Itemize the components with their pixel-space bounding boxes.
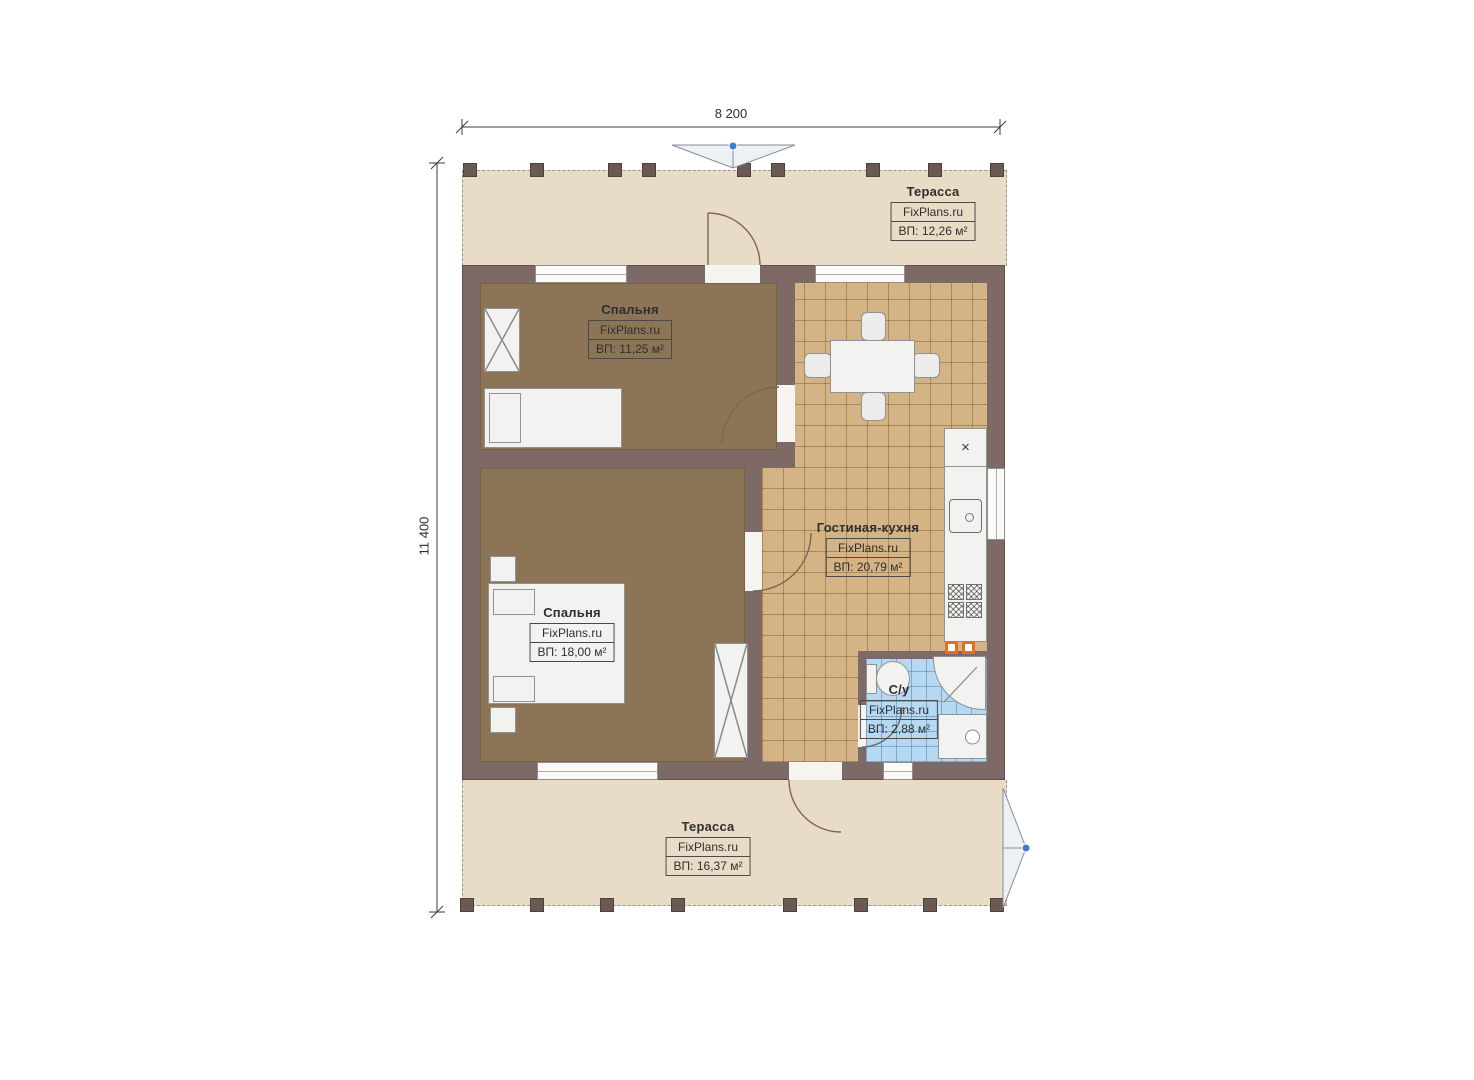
terrace-top-label: Терасса FixPlans.ru ВП: 12,26 м² [891, 184, 976, 241]
entry-door-opening [705, 265, 760, 283]
interior-wall [745, 450, 795, 468]
floor-plan-canvas: × [0, 0, 1474, 1080]
watermark: FixPlans.ru [892, 203, 975, 222]
bedroom-main-door-opening [745, 532, 762, 591]
back-door-opening [789, 762, 842, 780]
room-name: Гостиная-кухня [817, 520, 919, 535]
pillow-icon [493, 676, 535, 702]
chair-icon [912, 353, 940, 378]
terrace-post [866, 163, 880, 177]
terrace-post [608, 163, 622, 177]
terrace-post [923, 898, 937, 912]
terrace-bottom-label: Терасса FixPlans.ru ВП: 16,37 м² [666, 819, 751, 876]
stove-burner-icon [948, 584, 964, 600]
washing-machine-icon [938, 714, 987, 759]
watermark: FixPlans.ru [589, 321, 671, 340]
living-kitchen-label: Гостиная-кухня FixPlans.ru ВП: 20,79 м² [817, 520, 919, 577]
watermark: FixPlans.ru [667, 838, 750, 857]
room-area: ВП: 16,37 м² [667, 857, 750, 875]
chair-icon [861, 392, 886, 421]
terrace-post [460, 898, 474, 912]
window [537, 762, 658, 780]
terrace-post [463, 163, 477, 177]
room-area: ВП: 12,26 м² [892, 222, 975, 240]
stove-burner-icon [948, 602, 964, 618]
switch-box-icon [945, 641, 958, 654]
window [883, 762, 913, 780]
switch-box-icon [962, 641, 975, 654]
terrace-post [928, 163, 942, 177]
room-area: ВП: 18,00 м² [531, 643, 614, 661]
window [815, 265, 905, 283]
terrace-post [854, 898, 868, 912]
room-area: ВП: 2,88 м² [861, 720, 937, 738]
bedroom-main-label: Спальня FixPlans.ru ВП: 18,00 м² [530, 605, 615, 662]
terrace-post [642, 163, 656, 177]
chair-icon [861, 312, 886, 341]
terrace-post [530, 898, 544, 912]
window [987, 468, 1005, 540]
terrace-post [990, 163, 1004, 177]
dimension-height-label: 11 400 [417, 517, 432, 556]
stove-burner-icon [966, 602, 982, 618]
watermark: FixPlans.ru [861, 701, 937, 720]
bedroom-top-door-opening [777, 385, 795, 442]
terrace-post [530, 163, 544, 177]
chair-icon [804, 353, 832, 378]
kitchen-sink-icon [949, 499, 982, 533]
wardrobe-icon [484, 308, 520, 372]
washer-drum-icon [965, 729, 980, 744]
room-name: Терасса [666, 819, 751, 834]
fridge-icon: × [944, 428, 987, 467]
terrace-post [783, 898, 797, 912]
terrace-post [771, 163, 785, 177]
pillow-icon [489, 393, 521, 443]
dimension-width-label: 8 200 [715, 106, 748, 121]
room-name: С/у [860, 682, 938, 697]
terrace-post [671, 898, 685, 912]
room-name: Спальня [530, 605, 615, 620]
bedroom-top-label: Спальня FixPlans.ru ВП: 11,25 м² [588, 302, 672, 359]
room-name: Спальня [588, 302, 672, 317]
room-area: ВП: 11,25 м² [589, 340, 671, 358]
nightstand-icon [490, 556, 516, 582]
terrace-post [737, 163, 751, 177]
watermark: FixPlans.ru [827, 539, 910, 558]
stove-burner-icon [966, 584, 982, 600]
dining-table-icon [830, 340, 915, 393]
window [535, 265, 627, 283]
room-name: Терасса [891, 184, 976, 199]
wardrobe-icon [714, 643, 748, 758]
terrace-post [600, 898, 614, 912]
gable-symbol-bottom [1003, 788, 1030, 908]
room-area: ВП: 20,79 м² [827, 558, 910, 576]
nightstand-icon [490, 707, 516, 733]
terrace-post [990, 898, 1004, 912]
bathroom-label: С/у FixPlans.ru ВП: 2,88 м² [860, 682, 938, 739]
handle-dot [1022, 844, 1030, 852]
watermark: FixPlans.ru [531, 624, 614, 643]
handle-dot [729, 142, 737, 150]
